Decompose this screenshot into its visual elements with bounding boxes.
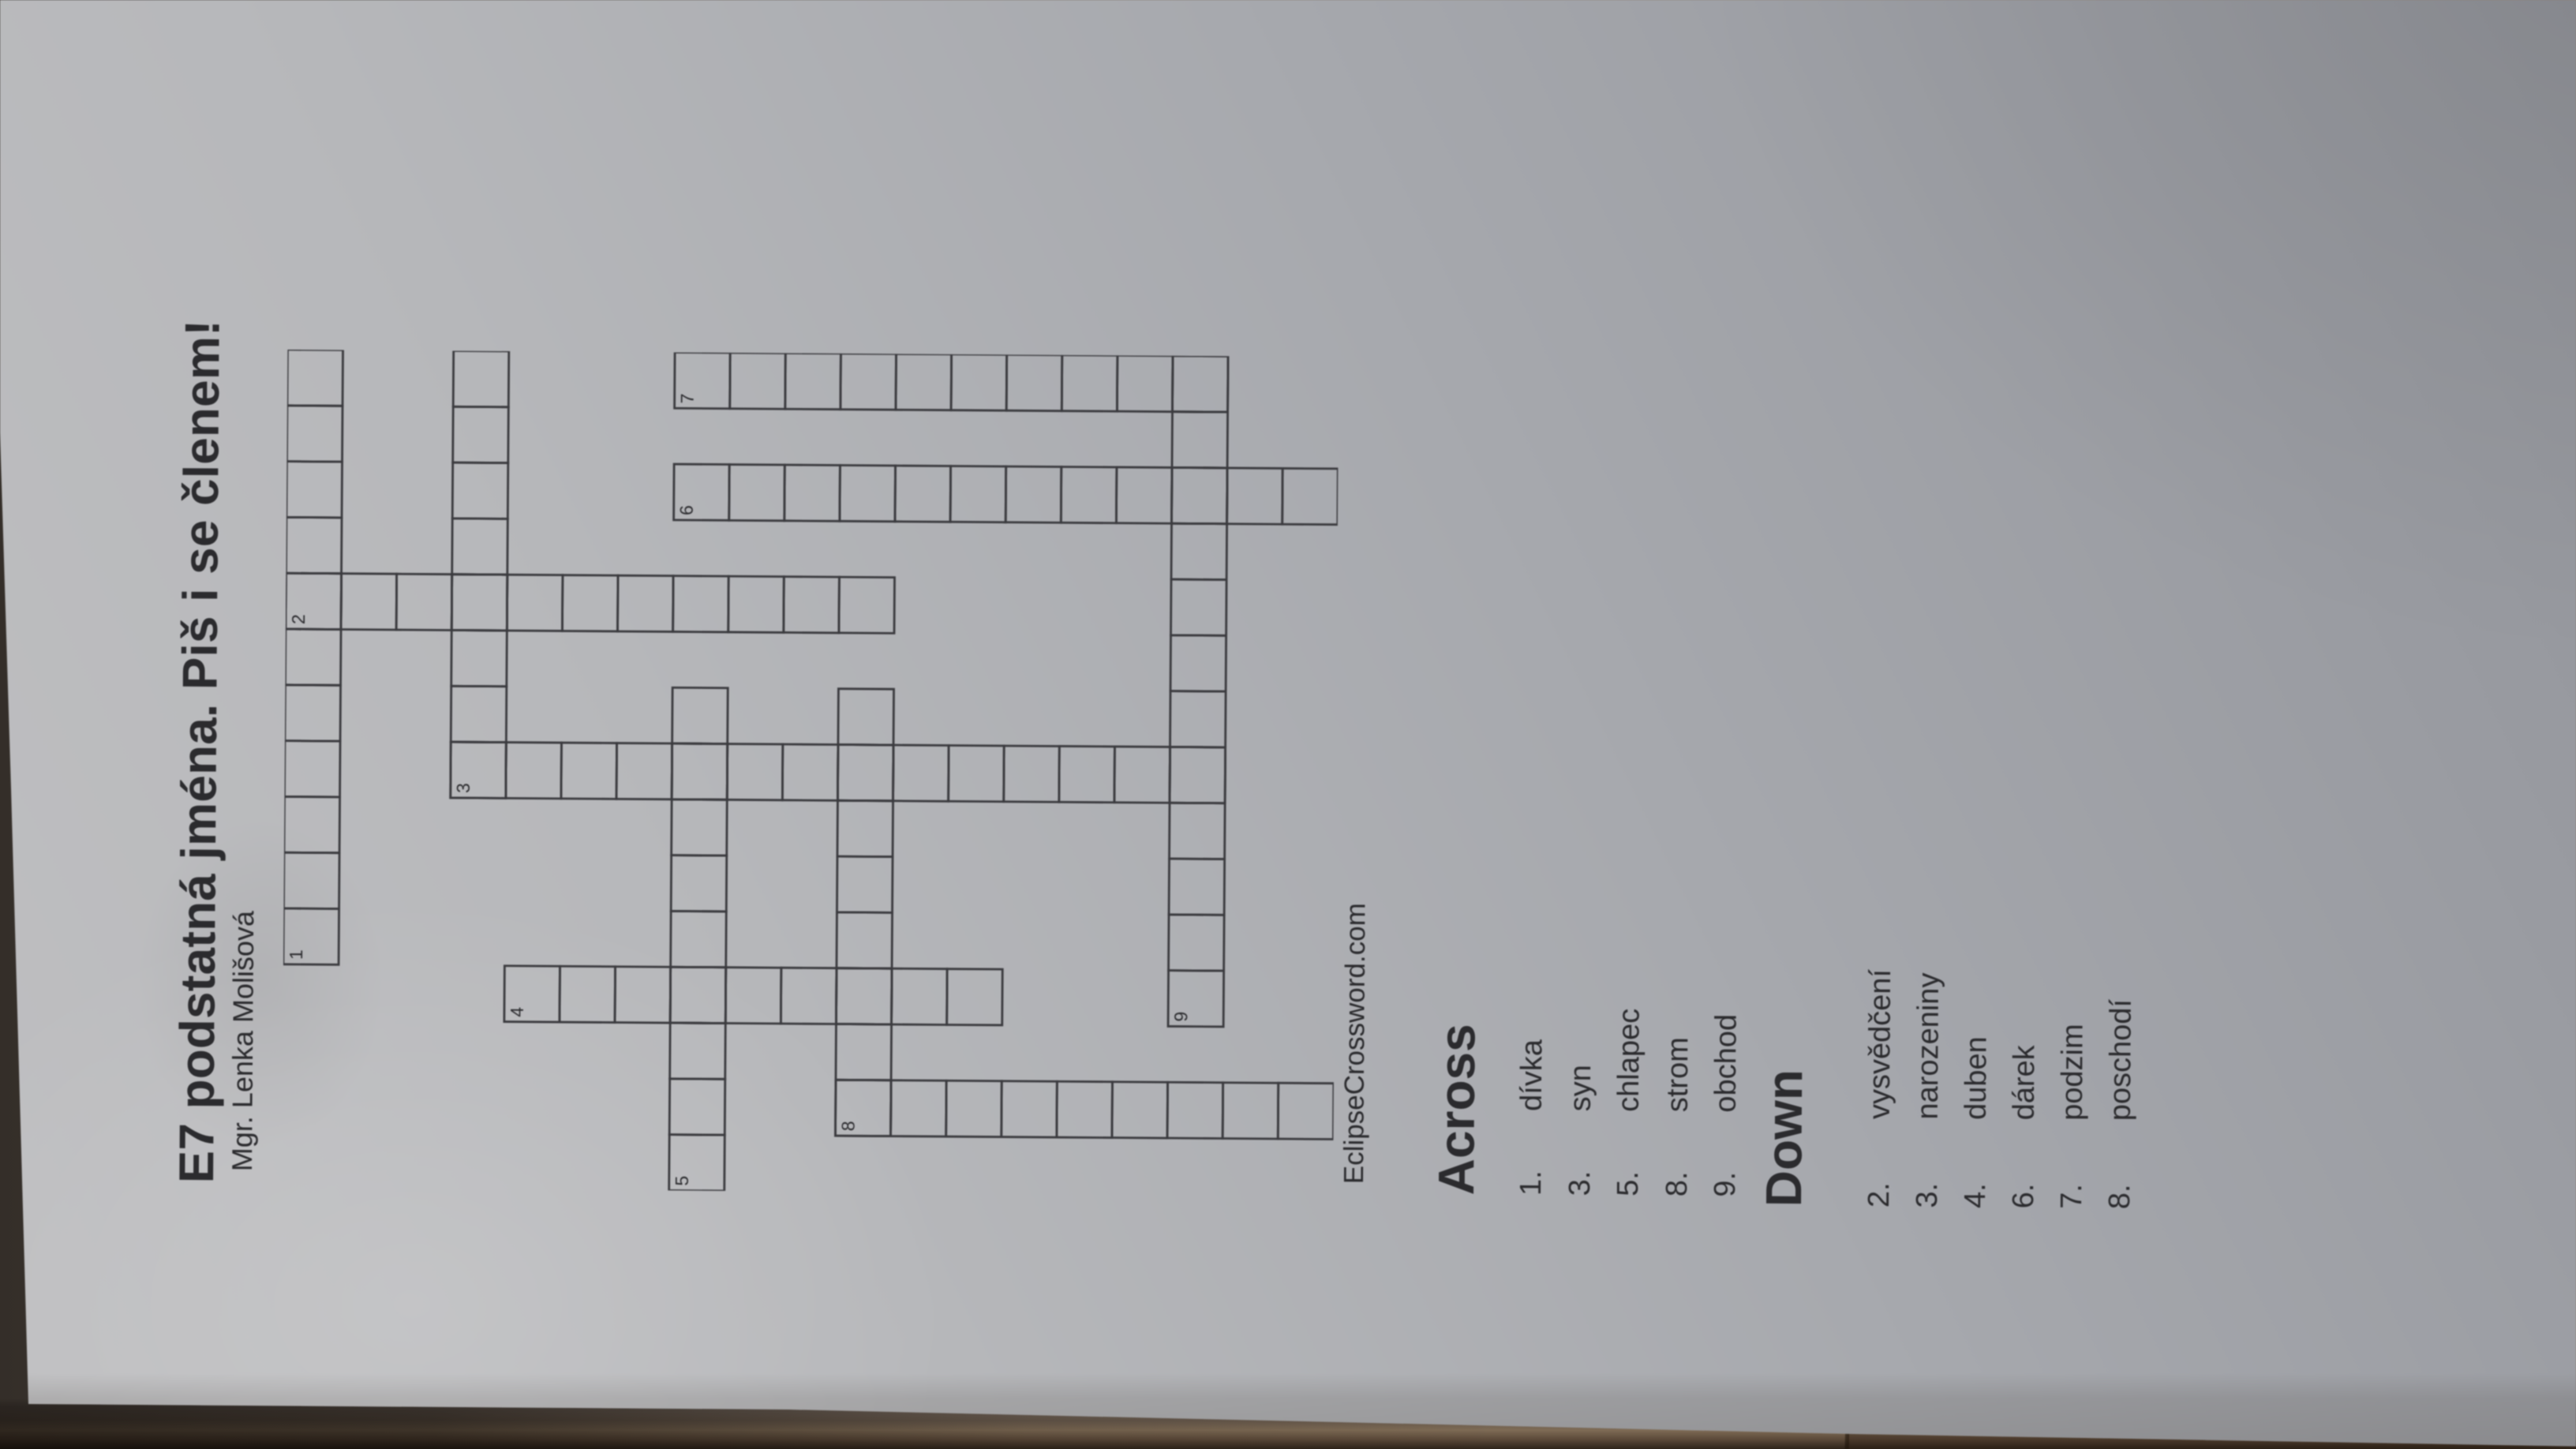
svg-text:1: 1	[286, 949, 306, 960]
svg-text:4: 4	[507, 1007, 527, 1017]
svg-text:8: 8	[838, 1121, 859, 1131]
svg-text:2: 2	[288, 614, 309, 624]
svg-text:7: 7	[677, 393, 698, 403]
svg-text:6: 6	[676, 505, 697, 515]
svg-text:3: 3	[453, 783, 474, 793]
svg-text:9: 9	[1170, 1012, 1191, 1022]
svg-text:5: 5	[672, 1176, 692, 1186]
